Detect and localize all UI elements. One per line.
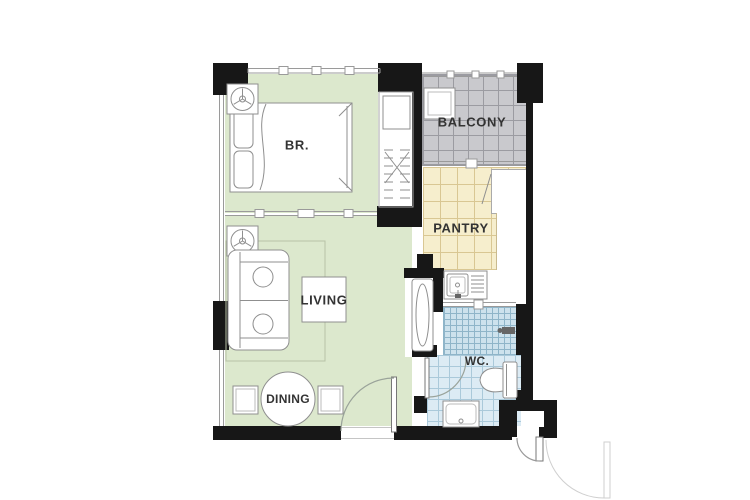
living-label: LIVING: [301, 293, 348, 308]
wardrobe: [379, 92, 413, 207]
wc-label: WC.: [465, 354, 489, 368]
kitchen-sink: [444, 271, 487, 299]
ac-unit-bedroom-icon: [227, 84, 258, 114]
cabinet-swing-line: [482, 174, 491, 204]
floor-plan: BR. BALCONY PANTRY LIVING DINING WC.: [0, 0, 750, 500]
dining-label: DINING: [266, 392, 310, 406]
washbasin: [443, 401, 479, 427]
balcony-label: BALCONY: [438, 115, 506, 130]
bedroom-label: BR.: [285, 138, 309, 153]
shower-head-icon: [498, 327, 516, 334]
plan-linework: [0, 0, 750, 500]
wc-door: [425, 358, 466, 398]
unit-entry-door: [517, 437, 543, 461]
neighbor-door-faint: [546, 440, 610, 498]
sofa: [228, 250, 289, 350]
pantry-label: PANTRY: [433, 221, 489, 236]
living-entrance-door: [341, 377, 397, 432]
refrigerator: [412, 279, 433, 351]
